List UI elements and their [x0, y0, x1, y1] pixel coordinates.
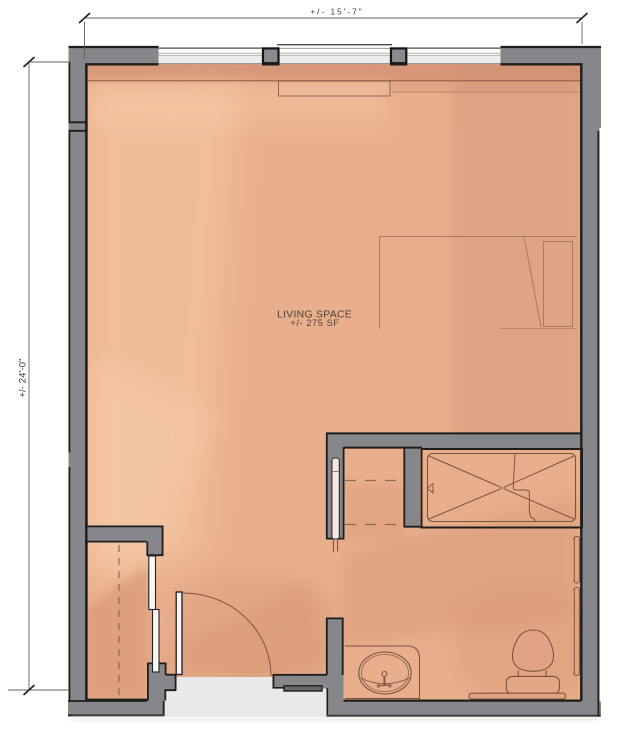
svg-text:+/- 15'-7": +/- 15'-7"	[310, 7, 363, 17]
svg-text:+/- 275 SF: +/- 275 SF	[290, 318, 339, 328]
svg-text:+/- 24'-0": +/- 24'-0"	[18, 358, 29, 397]
